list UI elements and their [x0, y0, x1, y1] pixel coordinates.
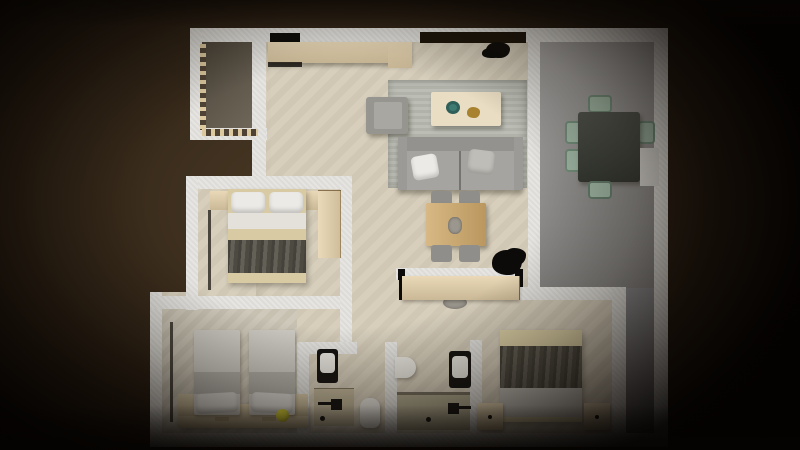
wall-bedroom1-right	[340, 176, 352, 354]
shower-drain	[426, 417, 431, 422]
wall-right	[654, 28, 668, 447]
dining-chair	[588, 95, 612, 113]
bed-twin	[194, 330, 240, 415]
closet	[402, 276, 520, 300]
terrace-floor	[202, 40, 255, 130]
bed-pillow	[196, 392, 239, 414]
sofa-backrest	[398, 137, 523, 151]
wall-bedroom3-right	[612, 292, 626, 433]
bed-sheet	[228, 213, 306, 229]
wall-left-bottom	[150, 292, 162, 447]
terrace-dashed-edge-left	[200, 44, 206, 130]
nightstand	[477, 403, 503, 430]
wall-dining-bottom	[520, 287, 626, 300]
bed-twin-band	[194, 372, 240, 394]
kitchen-cabinet	[388, 42, 412, 68]
floorplan-render: Top-down 3D rendered floor plan of a thr…	[0, 0, 800, 450]
wall-dining-left	[528, 28, 540, 290]
shower-fixture	[448, 403, 459, 414]
coffee-table	[431, 92, 501, 126]
radiator-line	[208, 210, 211, 290]
wall-bedroom1-left	[186, 176, 198, 310]
work-table-object	[448, 217, 462, 234]
sofa-pillow	[467, 149, 496, 176]
wall-bedroom1-bottom	[150, 296, 340, 309]
yellow-ball	[276, 409, 289, 422]
teal-bowl	[446, 101, 460, 114]
nightstand-knob	[488, 415, 492, 419]
gold-decor	[467, 107, 480, 118]
bed-double	[500, 330, 582, 422]
bed-double	[228, 189, 306, 283]
wall-bedroom1-top	[186, 176, 352, 189]
bed-twin-band	[249, 372, 295, 394]
pedestal-sink	[360, 398, 380, 428]
shower-fixture	[331, 399, 342, 410]
platform-drawer-mark	[262, 417, 276, 421]
toilet	[317, 349, 338, 383]
sofa-arm-left	[398, 137, 407, 190]
sofa-cushion-split	[459, 151, 461, 190]
terrace-dashed-edge-bottom	[202, 129, 258, 136]
sofa-pillow	[410, 153, 440, 181]
plant-icon	[486, 42, 510, 58]
armchair-seat	[374, 102, 402, 129]
toilet	[449, 351, 471, 388]
balcony-strip-floor	[626, 288, 654, 433]
work-chair	[459, 245, 480, 262]
sofa-arm-right	[514, 137, 523, 190]
wall-bottom	[150, 433, 668, 447]
ac-unit	[640, 148, 659, 186]
bed-blanket	[500, 346, 582, 388]
bed-sheet	[500, 388, 582, 417]
sofa	[398, 137, 523, 190]
bed-pillow	[269, 192, 303, 213]
shower-arm	[459, 406, 471, 409]
bed-twin	[249, 330, 295, 415]
platform-drawer-mark	[215, 417, 229, 421]
nightstand	[584, 403, 610, 430]
wardrobe	[318, 190, 341, 258]
toilet-seat	[320, 353, 335, 373]
shower-glass-line	[397, 392, 470, 395]
dining-table	[578, 112, 640, 182]
shower-drain	[320, 416, 325, 421]
dining-chair	[638, 121, 655, 144]
shower-arm	[318, 402, 331, 405]
kitchen-counter	[420, 32, 526, 43]
work-chair	[431, 245, 452, 262]
tv-console-shadow	[268, 62, 302, 67]
dining-chair	[588, 181, 612, 199]
shower-floor	[397, 392, 470, 430]
wall-sink	[395, 357, 416, 378]
plant-icon	[492, 250, 522, 275]
wall-bathrooms-mid	[385, 342, 397, 433]
bed-pillow	[231, 192, 265, 213]
wall-terrace-right	[252, 28, 266, 188]
radiator-line	[170, 322, 173, 422]
armchair	[366, 97, 408, 134]
bed-blanket	[228, 240, 306, 273]
nightstand	[210, 191, 229, 210]
nightstand-knob	[595, 415, 599, 419]
toilet-seat	[452, 356, 468, 378]
